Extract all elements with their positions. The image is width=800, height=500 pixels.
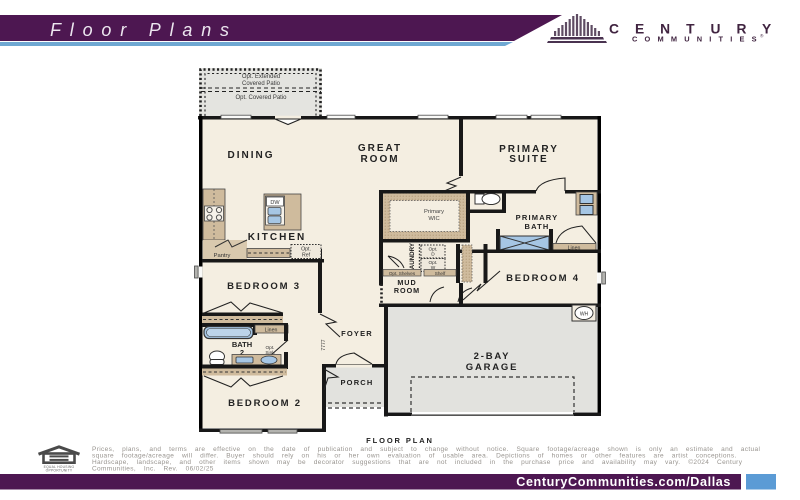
svg-text:DW: DW — [270, 200, 280, 206]
svg-text:Floor Plans: Floor Plans — [50, 20, 238, 40]
svg-text:Communities, Inc. Rev. 06/02/2: Communities, Inc. Rev. 06/02/25 — [92, 466, 214, 473]
svg-text:Pantry: Pantry — [214, 253, 231, 259]
svg-text:OPPORTUNITY: OPPORTUNITY — [46, 469, 73, 473]
svg-text:D: D — [431, 252, 435, 258]
svg-text:BEDROOM 3: BEDROOM 3 — [227, 281, 301, 292]
svg-text:CenturyCommunities.com/Dallas: CenturyCommunities.com/Dallas — [516, 475, 731, 489]
svg-text:ROOM: ROOM — [360, 154, 399, 165]
svg-text:GARAGE: GARAGE — [466, 362, 519, 373]
svg-text:WH: WH — [580, 312, 589, 318]
svg-text:Linen: Linen — [265, 328, 278, 334]
svg-text:PORCH: PORCH — [340, 378, 373, 387]
svg-text:WIC: WIC — [428, 216, 439, 222]
svg-text:Primary: Primary — [424, 209, 444, 215]
svg-text:SUITE: SUITE — [509, 154, 548, 165]
svg-text:BEDROOM 4: BEDROOM 4 — [506, 273, 580, 284]
svg-text:Ref: Ref — [302, 253, 311, 259]
svg-text:2-BAY: 2-BAY — [474, 351, 511, 362]
svg-text:LAUNDRY: LAUNDRY — [409, 242, 416, 273]
svg-text:GREAT: GREAT — [358, 143, 402, 154]
svg-text:Opt. Shelves: Opt. Shelves — [389, 271, 416, 276]
svg-text:Opt. Covered Patio: Opt. Covered Patio — [235, 95, 287, 101]
svg-text:FLOOR PLAN: FLOOR PLAN — [366, 436, 434, 445]
svg-text:DINING: DINING — [228, 150, 275, 161]
svg-text:PRIMARY: PRIMARY — [516, 213, 559, 222]
svg-text:BATH: BATH — [524, 222, 549, 231]
svg-text:7777: 7777 — [321, 339, 327, 350]
svg-text:COMMUNITIES: COMMUNITIES — [632, 35, 764, 44]
svg-text:Shelf: Shelf — [435, 271, 446, 276]
svg-text:ROOM: ROOM — [394, 286, 420, 295]
svg-text:FOYER: FOYER — [341, 329, 373, 338]
svg-text:Covered Patio: Covered Patio — [242, 81, 281, 87]
svg-text:KITCHEN: KITCHEN — [248, 232, 306, 243]
svg-text:Opt. Extended: Opt. Extended — [242, 74, 280, 80]
svg-text:BEDROOM 2: BEDROOM 2 — [228, 398, 302, 409]
